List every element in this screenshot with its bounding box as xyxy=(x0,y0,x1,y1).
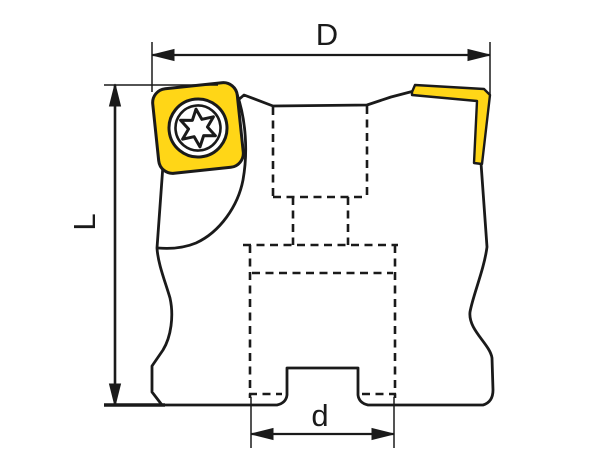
dimension-D-arrow-right xyxy=(468,50,490,61)
dimension-D-label: D xyxy=(316,17,338,52)
dimension-L-label: L xyxy=(67,213,102,230)
dimension-d-arrow-left xyxy=(251,429,273,440)
milling-cutter-drawing: D L d xyxy=(0,0,600,462)
dimension-L-arrow-bottom xyxy=(110,384,121,406)
indexable-insert xyxy=(151,81,244,174)
dimension-d-label: d xyxy=(311,398,328,433)
dimension-L-arrow-top xyxy=(110,84,121,106)
dimension-d-arrow-right xyxy=(372,429,394,440)
drawing-canvas: D L d xyxy=(0,0,600,462)
dimension-D-arrow-left xyxy=(152,50,174,61)
